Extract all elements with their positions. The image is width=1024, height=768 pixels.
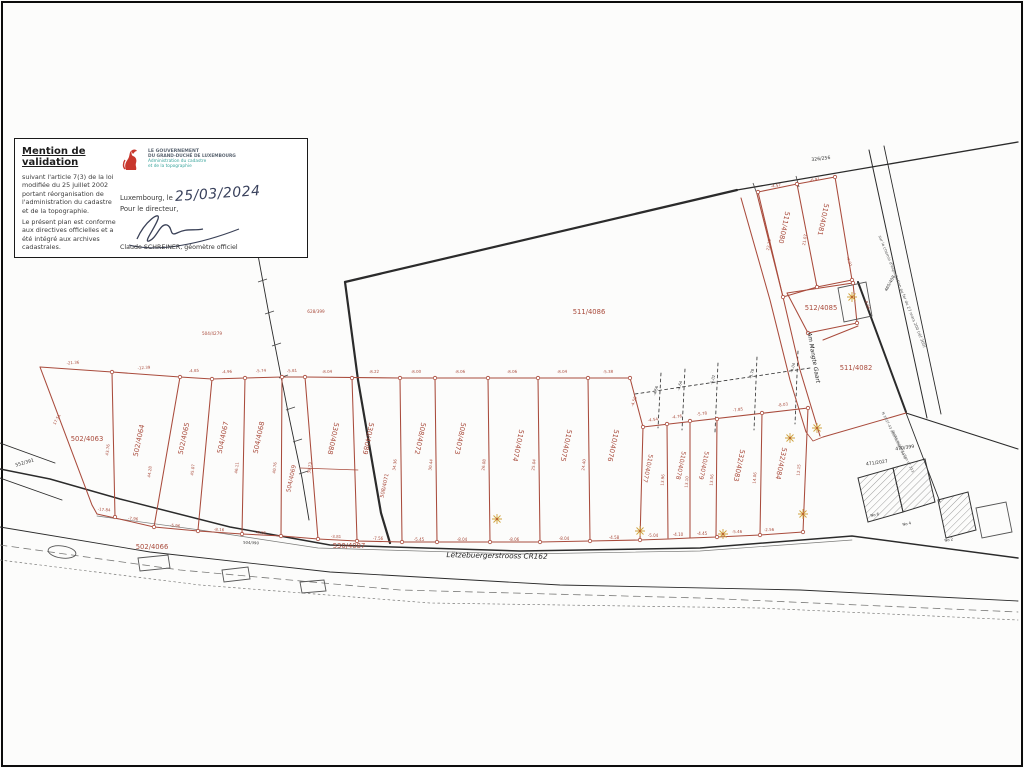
plan-line (635, 368, 810, 394)
measure-tick: -17.84 (97, 507, 111, 513)
measure-length: 40.76 (271, 461, 277, 473)
boundary-point (210, 377, 213, 380)
measure-tick: -8.16 (214, 527, 225, 533)
boundary-point (715, 417, 718, 420)
survey-marker-center (802, 513, 804, 515)
parcel-label: 510/4081 (816, 203, 831, 237)
boundary-point (113, 515, 116, 518)
measure-tick: -8.06 (509, 537, 520, 542)
parcel-boundary-line (400, 378, 402, 541)
measure-tick: -12.39 (137, 365, 151, 371)
boundary-point (536, 376, 539, 379)
survey-marker-center (722, 533, 724, 535)
parcel-label: 510/4077 (641, 454, 654, 484)
measure-tick-black: -4.64 (676, 380, 683, 391)
measure-tick: -8.22 (369, 369, 380, 374)
government-logo-text: LE GOUVERNEMENT DU GRAND-DUCHÉ DE LUXEMB… (148, 147, 236, 173)
measure-tick: -6.91 (809, 176, 821, 183)
plan-line (795, 351, 798, 424)
measure-tick: -7.85 (732, 406, 743, 412)
survey-marker-center (851, 296, 853, 298)
boundary-point (628, 376, 631, 379)
measure-tick: -5.45 (414, 537, 425, 542)
parcel-label: 511/4086 (573, 308, 606, 316)
ref-parcel-label: No 4 (902, 520, 912, 527)
parcel-label: 510/4078 (674, 451, 687, 481)
boundary-point (833, 175, 836, 178)
street-label: Lëtzebuergerstrooss CR162 (446, 550, 548, 561)
boundary-point (316, 537, 319, 540)
stamp-paragraph-2: Le présent plan est conforme aux directi… (22, 218, 118, 252)
parcel-boundary-line (198, 379, 212, 530)
measure-tick: -21.36 (66, 360, 80, 366)
measure-length: 25.04 (530, 458, 536, 470)
measure-length: 30.44 (427, 458, 433, 470)
measure-tick: -5.78 (696, 410, 707, 416)
measure-tick-black: -5.02 (709, 374, 716, 385)
government-logo-block: LE GOUVERNEMENT DU GRAND-DUCHÉ DE LUXEMB… (119, 147, 236, 173)
boundary-point (756, 190, 759, 193)
measure-tick: -4.85 (189, 368, 200, 374)
boundary-point (715, 535, 718, 538)
parcel-label: 508/4072 (413, 422, 428, 456)
street-label: Am Mangte Gaart (805, 331, 820, 384)
building-hatched (938, 492, 976, 538)
measure-tick: -4.76 (671, 413, 682, 419)
boundary-point (588, 539, 591, 542)
boundary-point (280, 375, 283, 378)
measure-tick: -7.56 (373, 536, 384, 541)
measure-tick: -4.10 (673, 532, 684, 537)
parcel-label: 512/4085 (805, 304, 838, 312)
measure-tick: -4.45 (697, 531, 708, 536)
measure-tick: -4.96 (222, 369, 233, 375)
survey-marker-center (639, 530, 641, 532)
boundary-point (350, 376, 353, 379)
measure-tick: -4.58 (609, 535, 620, 540)
measure-tick: -8.06 (507, 369, 518, 374)
plan-line (345, 282, 390, 543)
boundary-point (851, 281, 854, 284)
measure-tick: -8.03 (777, 401, 788, 407)
plan-line (682, 369, 685, 430)
boundary-point (486, 376, 489, 379)
parcel-label: 510/4079 (697, 451, 710, 481)
boundary-point (435, 540, 438, 543)
plan-line (0, 478, 62, 500)
parcel-label: 504/4067 (216, 421, 231, 455)
parcel-boundary-line (538, 378, 540, 542)
boundary-point (196, 529, 199, 532)
plan-line (0, 560, 1018, 620)
parcel-label: 510/4076 (606, 429, 621, 463)
plan-line (658, 373, 661, 428)
boundary-tick-mark (265, 311, 274, 314)
building-outline (138, 555, 170, 571)
measure-length: 13.10 (684, 475, 690, 487)
date-label: Luxembourg, le (120, 194, 173, 202)
parcel-boundary-line (281, 377, 282, 536)
parcel-label: 502/4064 (132, 424, 147, 458)
boundary-point (400, 540, 403, 543)
measure-tick: -8.04 (457, 537, 468, 542)
boundary-point (760, 411, 763, 414)
measure-tick: -2.56 (764, 527, 775, 532)
boundary-point (641, 425, 644, 428)
measure-tick: -4.21 (845, 256, 853, 268)
plan-line (906, 413, 1018, 449)
boundary-point (586, 376, 589, 379)
stamp-paragraph-1: suivant l'article 7(3) de la loi modifié… (22, 173, 118, 215)
parcel-boundary-line (823, 326, 858, 340)
parcel-boundary-line (488, 378, 490, 542)
parcel-label: 532/4084 (774, 447, 789, 481)
measure-tick: -8.04 (322, 369, 333, 374)
parcel-boundary-line (305, 377, 318, 539)
parcel-boundary-line (760, 413, 762, 535)
boundary-point (303, 375, 306, 378)
parcel-label: 511/4080 (777, 211, 792, 245)
parcel-boundary-line (667, 424, 668, 538)
parcel-label: 510/4075 (559, 429, 574, 463)
ref-parcel-label: No 2 (944, 536, 954, 543)
parcel-boundary-line (640, 427, 643, 540)
boundary-point (638, 538, 641, 541)
parcel-label: 511/4082 (840, 364, 873, 372)
boundary-point (688, 419, 691, 422)
parcel-boundary-line (97, 514, 803, 542)
measure-tick: -5.74 (256, 368, 267, 374)
measure-length: 21.07 (801, 233, 808, 246)
plan-line (754, 357, 757, 430)
ref-parcel-label: 552/391 (15, 458, 35, 469)
survey-marker-center (816, 427, 818, 429)
date-line: Luxembourg, le 25/03/2024 (120, 188, 261, 204)
gov-line-4: et de la topographie (148, 164, 236, 169)
parcel-label: 504/4279 (202, 331, 222, 336)
parcel-label: 530/4088 (326, 422, 341, 456)
building-outline (976, 502, 1012, 538)
measure-length: 14.06 (752, 471, 758, 483)
boundary-point (815, 285, 818, 288)
measure-tick-black: -4.56 (652, 385, 659, 396)
measure-length: 39.73 (306, 461, 312, 473)
boundary-point (488, 540, 491, 543)
boundary-point (758, 533, 761, 536)
ref-parcel-label: 326/256 (811, 155, 831, 163)
parcel-label: 502/4063 (71, 435, 104, 443)
parcel-boundary-line (757, 194, 820, 436)
boundary-point (240, 532, 243, 535)
measure-length: 13.96 (660, 473, 666, 485)
luxembourg-lion-icon (119, 147, 143, 173)
survey-marker-center (496, 518, 498, 520)
boundary-point (801, 530, 804, 533)
validation-stamp: Mention de validation suivant l'article … (14, 138, 308, 258)
measure-tick: -5.46 (732, 529, 743, 534)
measure-tick: -5.04 (648, 533, 659, 538)
parcel-boundary-line (242, 378, 245, 534)
measure-tick: -8.04 (559, 536, 570, 541)
parcel-label: 504/4068 (252, 421, 267, 455)
parcel-boundary-line (435, 378, 437, 542)
parcel-label: 502/4065 (177, 422, 192, 456)
measure-length: 34.36 (391, 458, 397, 470)
boundary-point (538, 540, 541, 543)
measure-length: 26.08 (480, 458, 486, 470)
parcel-boundary-line (741, 198, 806, 432)
boundary-point (665, 422, 668, 425)
parcel-label: 628/399 (307, 309, 325, 314)
boundary-point (279, 534, 282, 537)
parcel-label: 508/4073 (453, 422, 468, 456)
survey-marker-center (789, 437, 791, 439)
boundary-point (795, 182, 798, 185)
parcel-label: 510/4074 (511, 429, 526, 463)
boundary-point (433, 376, 436, 379)
measure-tick: -8.06 (455, 369, 466, 374)
parcel-boundary-line (716, 419, 717, 537)
parcel-label: 530/4089 (361, 422, 376, 456)
measure-length: 17.51 (52, 413, 62, 426)
measure-tick-black: -4.04 (789, 362, 796, 373)
measure-tick: -8.06 (863, 299, 871, 311)
cadastral-plan-svg: 502/4063502/4064502/4065504/4067504/4068… (0, 0, 1024, 768)
measure-tick: -5.38 (603, 369, 614, 374)
parcel-boundary-line (806, 432, 823, 441)
parcel-boundary-line (588, 378, 590, 541)
boundary-point (178, 375, 181, 378)
measure-tick: -5.81 (287, 368, 298, 374)
boundary-point (398, 376, 401, 379)
measure-length: 45.07 (189, 463, 195, 475)
boundary-point (781, 295, 784, 298)
boundary-point (152, 525, 155, 528)
parcel-label: 530/4087 (333, 542, 366, 550)
boundary-tick-mark (272, 343, 281, 346)
plan-line (345, 190, 737, 282)
measure-tick: -4.54 (647, 416, 658, 422)
parcel-label: 502/4066 (136, 543, 169, 551)
boundary-point (855, 321, 858, 324)
parcel-boundary-line (112, 372, 115, 517)
boundary-point (243, 376, 246, 379)
parcel-label: 532/4083 (732, 449, 747, 483)
measure-length: 12.15 (796, 463, 802, 475)
measure-length: 24.40 (580, 458, 586, 470)
parcel-boundary-line (352, 378, 357, 540)
measure-length: 46.11 (233, 461, 239, 473)
boundary-point (110, 370, 113, 373)
measure-tick: -8.04 (557, 369, 568, 374)
measure-length: 43.76 (104, 443, 110, 455)
ref-parcel-label: 504/390 (243, 540, 260, 546)
measure-tick: -3.81 (331, 534, 342, 539)
measure-length: 13.56 (709, 473, 715, 485)
measure-length: 44.28 (146, 465, 152, 477)
boundary-point (806, 406, 809, 409)
measure-tick: -5.96 (170, 523, 181, 529)
signer-name: Claude SCHREINER, géomètre officiel (120, 244, 238, 251)
parcel-label: 508/4071 (380, 473, 391, 499)
measure-tick-black: -3.78 (748, 368, 755, 379)
stamp-title: Mention de validation (22, 146, 122, 168)
handwritten-date: 25/03/2024 (174, 183, 261, 205)
parcel-label: 504/4069 (286, 464, 298, 493)
ref-parcel-label: 471/2027 (866, 458, 889, 467)
measure-tick: -8.00 (411, 369, 422, 374)
signature-icon (123, 205, 253, 249)
measure-tick: -5.91 (256, 530, 267, 535)
cadastral-plan-page: 502/4063502/4064502/4065504/4067504/4068… (0, 0, 1024, 768)
